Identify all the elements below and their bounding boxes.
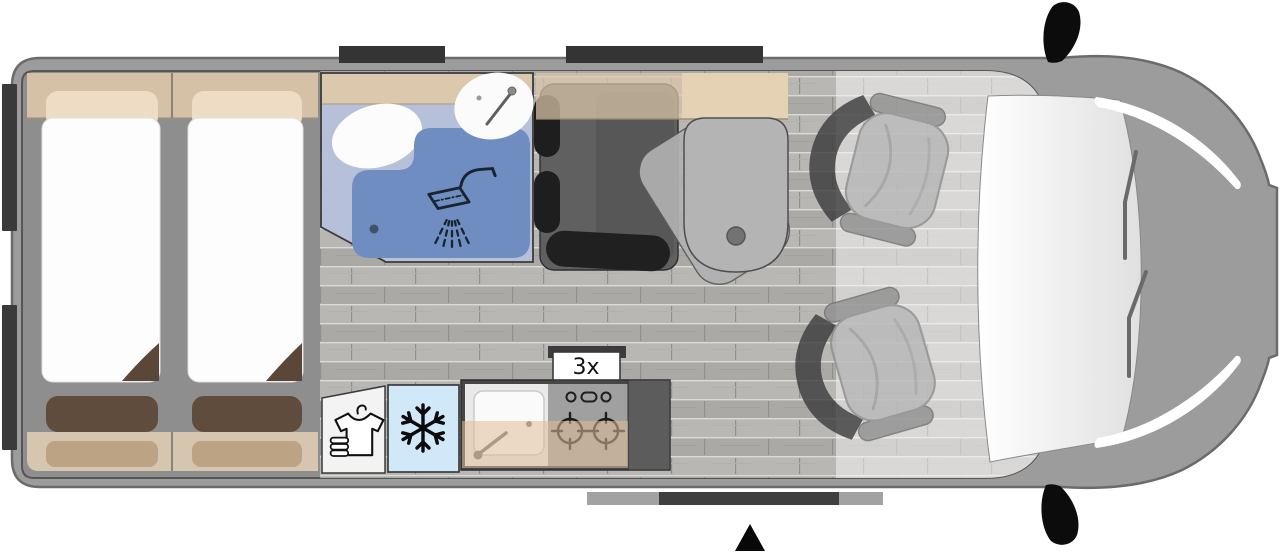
entrance-arrow-icon <box>735 524 765 551</box>
roof-rail-segment <box>339 46 445 63</box>
overhead-cabinet <box>536 73 682 119</box>
foot-cushion <box>46 396 158 432</box>
dinette-with-table <box>534 73 799 294</box>
wardrobe <box>322 386 385 473</box>
dinette-table <box>684 118 788 272</box>
bed-mattress <box>42 118 160 382</box>
bench-headrest <box>534 171 560 233</box>
foot-cushion <box>192 396 302 432</box>
bench-cushion-overlay <box>192 441 302 467</box>
shower-drain <box>370 225 379 234</box>
fridge <box>388 385 459 472</box>
roof-rail-segment <box>566 46 763 63</box>
bench-seat-cushion <box>545 230 671 272</box>
kitchen-tall-cabinet <box>628 380 670 470</box>
rear-door-marker <box>2 305 17 450</box>
wing-mirror-icon <box>1043 2 1080 63</box>
wing-mirror-icon <box>1041 484 1078 545</box>
rear-door-marker <box>2 84 17 231</box>
overhead-cabinet <box>682 73 788 119</box>
windshield <box>978 95 1142 462</box>
counter-overlay <box>462 421 628 468</box>
bathroom-shower <box>321 64 541 262</box>
bed-mattress <box>188 118 303 382</box>
burner-label: 3x <box>572 355 599 380</box>
entry-door-slider <box>659 492 839 505</box>
campervan-floorplan: 3x <box>0 0 1280 555</box>
table-leg-icon <box>727 227 745 245</box>
bench-cushion-overlay <box>46 441 158 467</box>
